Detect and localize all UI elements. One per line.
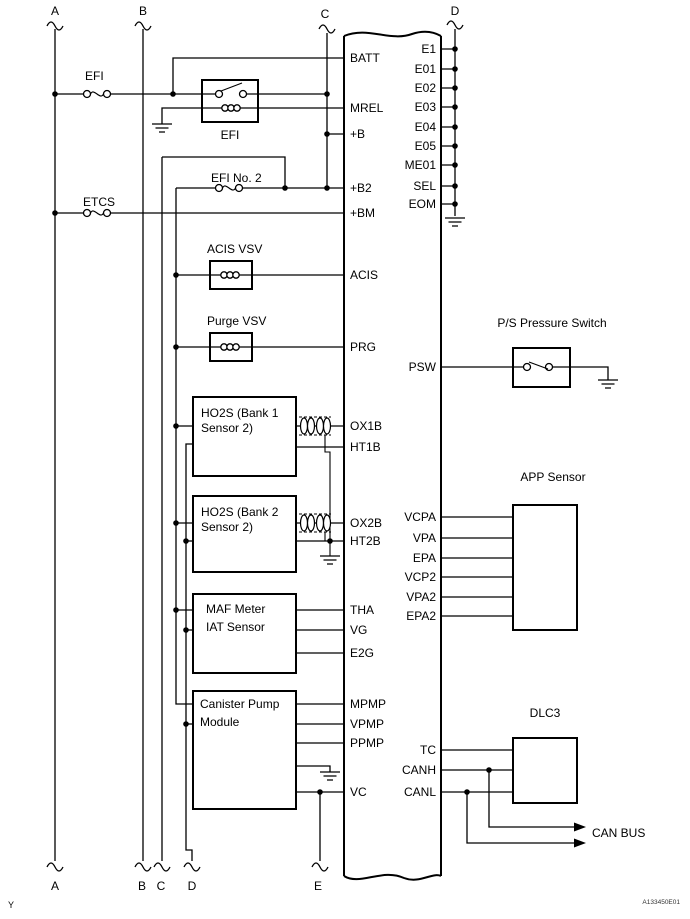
vsv-wiring — [176, 272, 344, 350]
ecm-wiring-diagram: A B C D A B C D E — [0, 0, 690, 919]
app-sensor-box — [513, 505, 577, 630]
pin-e03: E03 — [415, 100, 437, 114]
connector-e-bottom: E — [314, 879, 322, 893]
pin-ox2b: OX2B — [350, 516, 382, 530]
pin-vg: VG — [350, 623, 367, 637]
pin-plus-b2: +B2 — [350, 181, 372, 195]
pin-plus-b: +B — [350, 127, 365, 141]
pin-sel: SEL — [413, 179, 436, 193]
efi-fuse-label: EFI — [85, 69, 104, 83]
dlc3-box — [513, 738, 577, 803]
pin-prg: PRG — [350, 340, 376, 354]
pin-vpmp: VPMP — [350, 717, 384, 731]
maf-label-line2: IAT Sensor — [206, 620, 265, 634]
maf-label-line1: MAF Meter — [206, 602, 265, 616]
pin-batt: BATT — [350, 51, 380, 65]
pin-e1: E1 — [421, 42, 436, 56]
pin-vpa2: VPA2 — [406, 590, 436, 604]
pin-e2g: E2G — [350, 646, 374, 660]
pin-vpa: VPA — [413, 531, 436, 545]
pin-me01: ME01 — [405, 158, 437, 172]
pin-tc: TC — [420, 743, 436, 757]
connector-a-top: A — [51, 4, 59, 18]
connector-b-top: B — [139, 4, 147, 18]
pin-tha: THA — [350, 603, 374, 617]
efi-relay-label: EFI — [221, 128, 240, 142]
ho2s-bank2-label-line1: HO2S (Bank 2 — [201, 505, 279, 519]
pin-plus-bm: +BM — [350, 206, 375, 220]
canister-label-line2: Module — [200, 715, 240, 729]
app-sensor-label: APP Sensor — [520, 470, 585, 484]
pin-ht2b: HT2B — [350, 534, 381, 548]
connector-c-top: C — [321, 7, 330, 21]
ecm-ground-pins — [441, 49, 465, 226]
acis-vsv-label: ACIS VSV — [207, 242, 262, 256]
pin-mpmp: MPMP — [350, 697, 386, 711]
connector-a-bottom: A — [51, 879, 59, 893]
pin-eom: EOM — [409, 197, 436, 211]
pin-psw: PSW — [409, 360, 437, 374]
pin-e02: E02 — [415, 81, 437, 95]
pin-ox1b: OX1B — [350, 419, 382, 433]
pin-vcp2: VCP2 — [405, 570, 437, 584]
connector-c-bottom: C — [157, 879, 166, 893]
pin-canl: CANL — [404, 785, 436, 799]
connector-d-top: D — [451, 4, 460, 18]
pin-e01: E01 — [415, 62, 437, 76]
pin-acis: ACIS — [350, 268, 378, 282]
pin-ppmp: PPMP — [350, 736, 384, 750]
pin-vcpa: VCPA — [404, 510, 436, 524]
connector-d-bottom: D — [188, 879, 197, 893]
ecm-left-pin-labels: BATT MREL +B +B2 +BM ACIS PRG OX1B HT1B … — [350, 51, 386, 799]
ho2s-bank1-label-line1: HO2S (Bank 1 — [201, 406, 279, 420]
purge-vsv-label: Purge VSV — [207, 314, 266, 328]
pin-e05: E05 — [415, 139, 437, 153]
app-sensor-wiring — [441, 517, 513, 616]
can-bus-label: CAN BUS — [592, 826, 645, 840]
pin-vc: VC — [350, 785, 367, 799]
ho2s-bank2-label-line2: Sensor 2) — [201, 520, 253, 534]
page-mark: Y — [8, 900, 14, 910]
canister-label-line1: Canister Pump — [200, 697, 280, 711]
wiring-diagram-page: A B C D A B C D E — [0, 0, 690, 919]
ho2s-bank1-label-line2: Sensor 2) — [201, 421, 253, 435]
document-code: A133450E01 — [642, 899, 680, 906]
pin-epa2: EPA2 — [406, 609, 436, 623]
pin-ht1b: HT1B — [350, 440, 381, 454]
pin-canh: CANH — [402, 763, 436, 777]
etcs-fuse-label: ETCS — [83, 195, 115, 209]
pin-epa: EPA — [413, 551, 436, 565]
dlc3-label: DLC3 — [530, 706, 561, 720]
efi-no2-fuse-label: EFI No. 2 — [211, 171, 262, 185]
connector-b-bottom: B — [138, 879, 146, 893]
pin-e04: E04 — [415, 120, 437, 134]
efi-relay-box — [202, 80, 258, 122]
pin-mrel: MREL — [350, 101, 384, 115]
ecm-right-pin-labels: E1 E01 E02 E03 E04 E05 ME01 SEL EOM PSW … — [402, 42, 437, 799]
ps-pressure-switch-label: P/S Pressure Switch — [497, 316, 606, 330]
